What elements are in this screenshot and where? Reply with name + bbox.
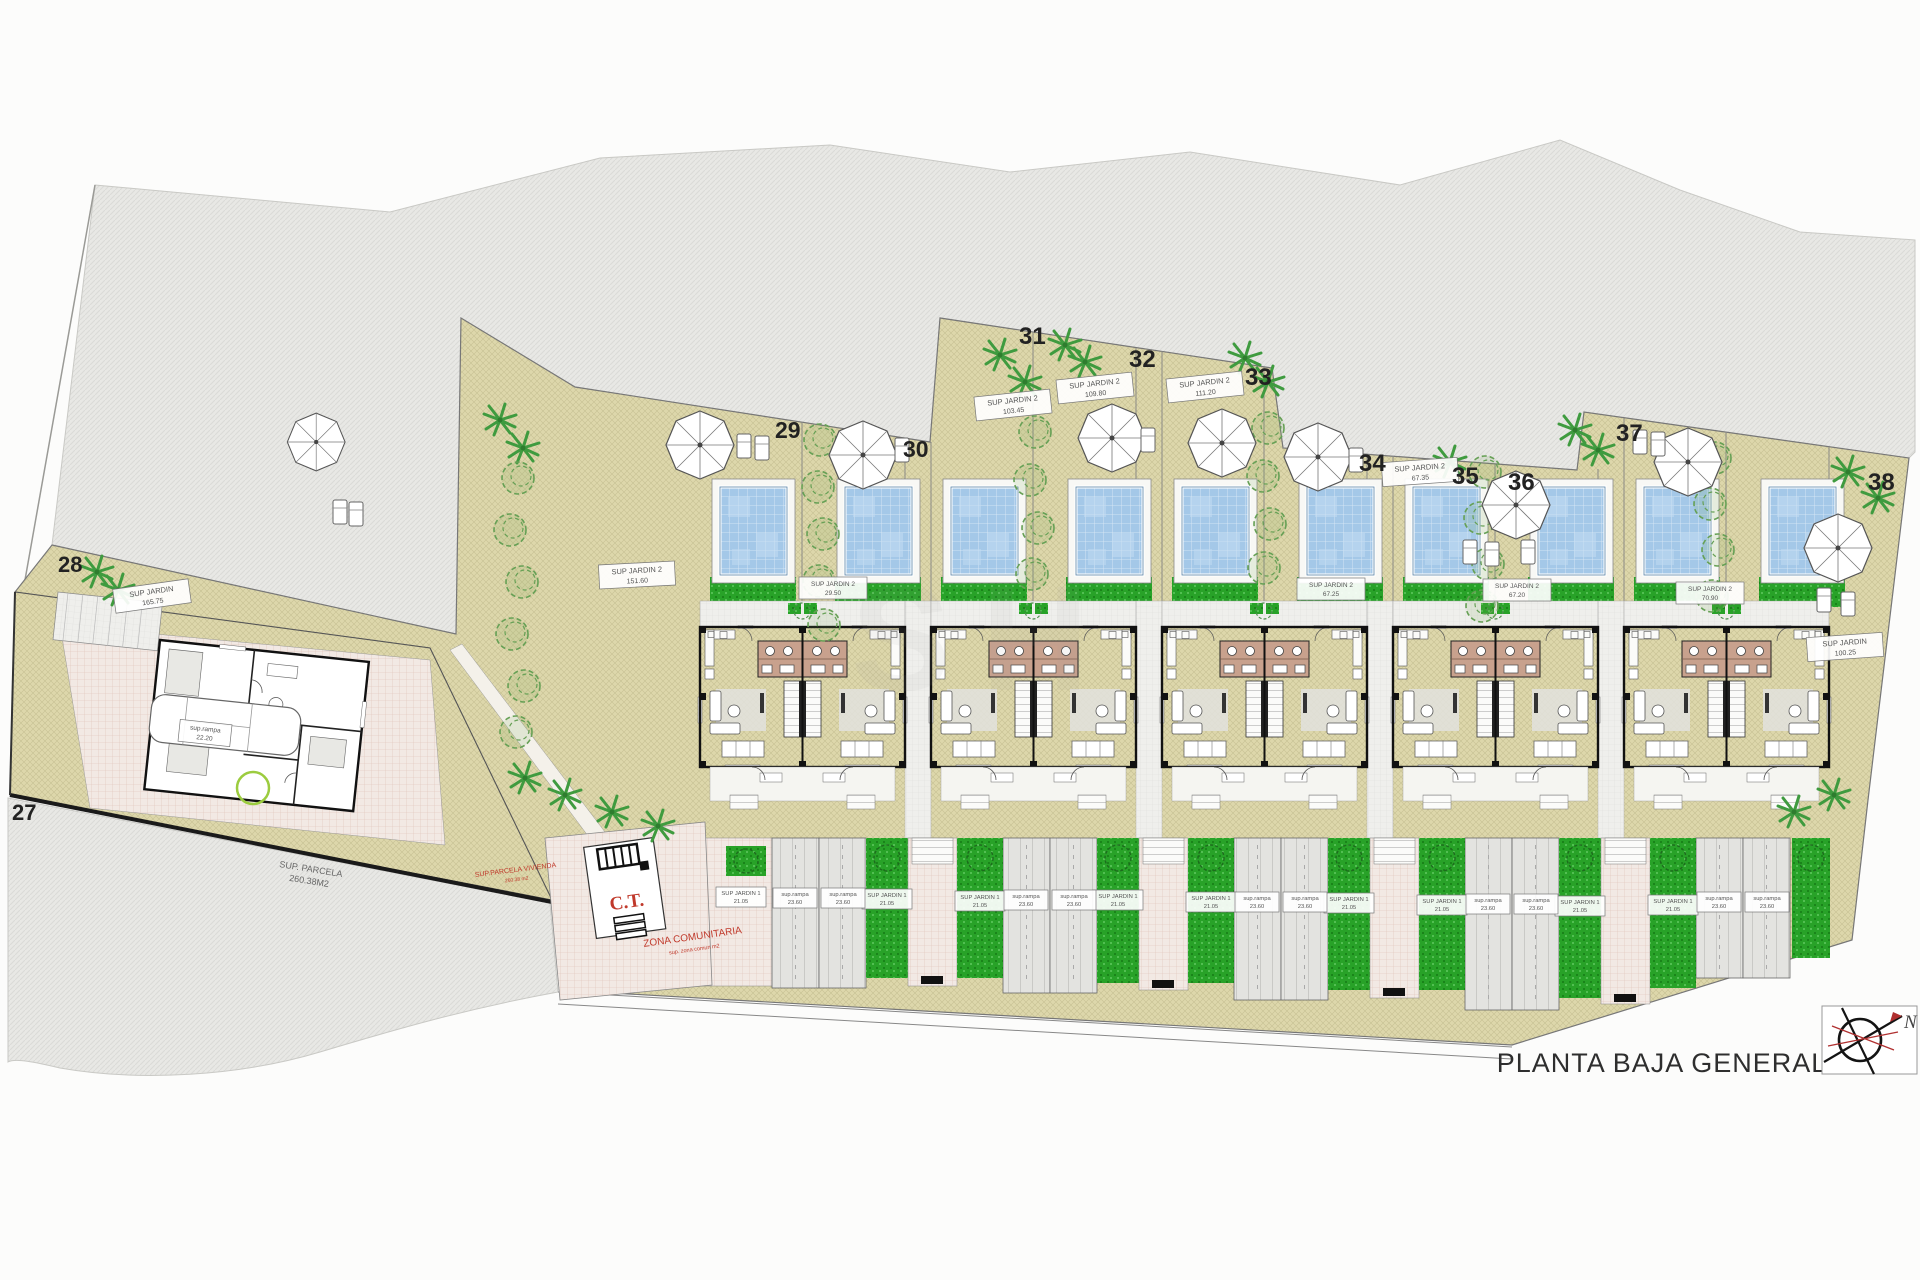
round-tree-icon <box>802 471 834 503</box>
svg-text:SUP JARDIN 1: SUP JARDIN 1 <box>721 891 760 897</box>
svg-text:151.60: 151.60 <box>626 577 648 585</box>
label-rampa: sup.rampa 23.60 <box>1697 892 1741 912</box>
svg-text:sup.rampa: sup.rampa <box>1474 898 1502 904</box>
plot-number-35: 35 <box>1452 463 1479 490</box>
label-jardin1: SUP JARDIN 1 21.05 <box>1093 890 1143 910</box>
svg-text:23.60: 23.60 <box>1529 906 1544 912</box>
svg-text:SUP JARDIN 1: SUP JARDIN 1 <box>1422 899 1461 905</box>
label-jardin-36: SUP JARDIN 2 67.20 <box>1483 579 1551 601</box>
svg-text:SUP JARDIN 2: SUP JARDIN 2 <box>1495 583 1539 590</box>
label-rampa: sup.rampa 23.60 <box>1283 892 1327 912</box>
ct-transformer: C.T. <box>584 838 667 943</box>
svg-text:100.25: 100.25 <box>1835 649 1857 657</box>
round-tree-icon <box>494 514 526 546</box>
round-tree-icon <box>506 566 538 598</box>
label-rampa: sup.rampa 23.60 <box>1052 890 1096 910</box>
svg-text:sup.rampa: sup.rampa <box>1243 896 1271 902</box>
svg-text:sup.rampa: sup.rampa <box>1291 896 1319 902</box>
block-units-33-34 <box>1160 601 1369 809</box>
svg-text:21.05: 21.05 <box>1435 907 1450 913</box>
round-tree-icon <box>1702 534 1734 566</box>
svg-text:21.05: 21.05 <box>973 903 988 909</box>
round-tree-icon <box>1252 412 1284 444</box>
lounger-icon <box>1463 540 1477 564</box>
svg-text:21.05: 21.05 <box>734 899 749 905</box>
pool-29 <box>712 479 795 583</box>
label-jardin-34: SUP JARDIN 2 67.25 <box>1297 578 1365 600</box>
svg-text:23.60: 23.60 <box>1019 902 1034 908</box>
north-label: N <box>1903 1012 1918 1033</box>
svg-text:SUP JARDIN 2: SUP JARDIN 2 <box>1309 582 1353 589</box>
plot-number-30: 30 <box>903 436 929 462</box>
label-jardin1: SUP JARDIN 1 21.05 <box>862 889 912 909</box>
svg-text:23.60: 23.60 <box>836 900 851 906</box>
lounger-icon <box>1817 588 1831 612</box>
svg-text:sup.rampa: sup.rampa <box>1522 898 1550 904</box>
label-jardin1: SUP JARDIN 1 21.05 <box>1324 893 1374 913</box>
svg-text:29.50: 29.50 <box>825 590 842 597</box>
lounger-icon <box>1141 428 1155 452</box>
label-jardin1: SUP JARDIN 1 21.05 <box>1417 895 1467 915</box>
label-jardin1: SUP JARDIN 1 21.05 <box>1555 896 1605 916</box>
umbrella-icon <box>1188 409 1256 477</box>
plot-number-37: 37 <box>1616 420 1643 447</box>
svg-text:SUP JARDIN 1: SUP JARDIN 1 <box>1653 899 1692 905</box>
plot-number-29: 29 <box>775 417 801 443</box>
svg-text:sup.rampa: sup.rampa <box>1753 896 1781 902</box>
svg-text:23.60: 23.60 <box>1298 904 1313 910</box>
lounger-icon <box>755 436 769 460</box>
label-rampa: sup.rampa 23.60 <box>1745 892 1789 912</box>
svg-text:67.25: 67.25 <box>1323 591 1340 598</box>
svg-text:sup.rampa: sup.rampa <box>781 892 809 898</box>
svg-text:23.60: 23.60 <box>788 900 803 906</box>
svg-text:sup.rampa: sup.rampa <box>1705 896 1733 902</box>
plot-number-34: 34 <box>1359 450 1386 477</box>
umbrella-icon <box>1284 423 1352 491</box>
label-rampa: sup.rampa 23.60 <box>773 888 817 908</box>
label-jardin1: SUP JARDIN 1 21.05 <box>1648 895 1698 915</box>
lounger-icon <box>333 500 347 524</box>
svg-text:67.20: 67.20 <box>1509 592 1526 599</box>
svg-text:sup.rampa: sup.rampa <box>1060 894 1088 900</box>
round-tree-icon <box>1247 460 1279 492</box>
svg-text:21.05: 21.05 <box>880 901 895 907</box>
label-jardin-37: SUP JARDIN 2 70.90 <box>1676 582 1744 604</box>
pool-34 <box>1299 479 1382 583</box>
round-tree-icon <box>808 609 840 641</box>
umbrella-icon <box>287 413 345 471</box>
svg-text:SUP JARDIN 1: SUP JARDIN 1 <box>1560 900 1599 906</box>
svg-text:21.05: 21.05 <box>1342 905 1357 911</box>
svg-text:SUP JARDIN 1: SUP JARDIN 1 <box>1098 894 1137 900</box>
label-rampa: sup.rampa 23.60 <box>1235 892 1279 912</box>
label-jardin-29: SUP JARDIN 2 151.60 <box>598 561 675 589</box>
svg-text:23.60: 23.60 <box>1250 904 1265 910</box>
plot-number-28: 28 <box>58 552 82 577</box>
round-tree-icon <box>500 716 532 748</box>
label-rampa: sup.rampa 23.60 <box>1466 894 1510 914</box>
label-jardin-35: SUP JARDIN 2 67.35 <box>1381 457 1458 486</box>
round-tree-icon <box>496 618 528 650</box>
pool-33 <box>1174 479 1257 583</box>
umbrella-icon <box>829 421 897 489</box>
svg-text:21.05: 21.05 <box>1573 908 1588 914</box>
plot-number-33: 33 <box>1245 364 1272 391</box>
site-plan-drawing: C.T. ZONA COMUNITARIA sup. zona comun m2 <box>0 0 1920 1280</box>
svg-text:21.05: 21.05 <box>1204 904 1219 910</box>
plot-number-31: 31 <box>1019 323 1046 350</box>
plot-number-32: 32 <box>1129 346 1156 373</box>
lounger-icon <box>1485 542 1499 566</box>
svg-text:sup.rampa: sup.rampa <box>1012 894 1040 900</box>
label-rampa: sup.rampa 23.60 <box>821 888 865 908</box>
svg-text:SUP JARDIN 1: SUP JARDIN 1 <box>867 893 906 899</box>
block-units-37-38 <box>1622 601 1831 809</box>
svg-text:23.60: 23.60 <box>1481 906 1496 912</box>
round-tree-icon <box>807 518 839 550</box>
round-tree-icon <box>1694 488 1726 520</box>
svg-text:23.60: 23.60 <box>1067 902 1082 908</box>
label-rampa: sup.rampa 23.60 <box>1514 894 1558 914</box>
svg-text:SUP JARDIN 2: SUP JARDIN 2 <box>811 581 855 588</box>
page-title: PLANTA BAJA GENERAL <box>1497 1048 1828 1078</box>
plot-number-38: 38 <box>1868 469 1895 496</box>
svg-text:67.35: 67.35 <box>1411 474 1429 482</box>
label-jardin1: SUP JARDIN 1 21.05 <box>1186 892 1236 912</box>
svg-text:SUP JARDIN 1: SUP JARDIN 1 <box>960 895 999 901</box>
round-tree-icon <box>502 462 534 494</box>
watermark: SH <box>851 554 1119 722</box>
svg-text:SUP JARDIN 1: SUP JARDIN 1 <box>1329 897 1368 903</box>
svg-text:sup.rampa: sup.rampa <box>829 892 857 898</box>
round-tree-icon <box>1019 416 1051 448</box>
svg-text:21.05: 21.05 <box>1666 907 1681 913</box>
lounger-icon <box>349 502 363 526</box>
lounger-icon <box>1521 540 1535 564</box>
svg-text:70.90: 70.90 <box>1702 595 1719 602</box>
label-jardin1: SUP JARDIN 1 21.05 <box>716 887 766 907</box>
umbrella-icon <box>1078 404 1146 472</box>
lounger-icon <box>1651 432 1665 456</box>
round-tree-icon <box>1022 512 1054 544</box>
svg-text:23.60: 23.60 <box>1760 904 1775 910</box>
lounger-icon <box>737 434 751 458</box>
lounger-icon <box>1841 592 1855 616</box>
round-tree-icon <box>1254 508 1286 540</box>
site-plan-page: { "title": "PLANTA BAJA GENERAL", "compa… <box>0 0 1920 1280</box>
svg-text:21.05: 21.05 <box>1111 902 1126 908</box>
svg-text:23.60: 23.60 <box>1712 904 1727 910</box>
round-tree-icon <box>508 670 540 702</box>
round-tree-icon <box>1014 464 1046 496</box>
svg-text:SUP JARDIN 1: SUP JARDIN 1 <box>1191 896 1230 902</box>
north-compass: N <box>1822 1006 1918 1074</box>
round-tree-icon <box>1248 552 1280 584</box>
umbrella-icon <box>666 411 734 479</box>
label-jardin1: SUP JARDIN 1 21.05 <box>955 891 1005 911</box>
label-jardin-38: SUP JARDIN 100.25 <box>1806 632 1883 661</box>
label-rampa: sup.rampa 23.60 <box>1004 890 1048 910</box>
umbrella-icon <box>1804 514 1872 582</box>
svg-text:SUP JARDIN 2: SUP JARDIN 2 <box>1688 586 1732 593</box>
plot-number-27: 27 <box>12 800 36 825</box>
plot-number-36: 36 <box>1508 469 1535 496</box>
block-units-35-36 <box>1391 601 1600 809</box>
